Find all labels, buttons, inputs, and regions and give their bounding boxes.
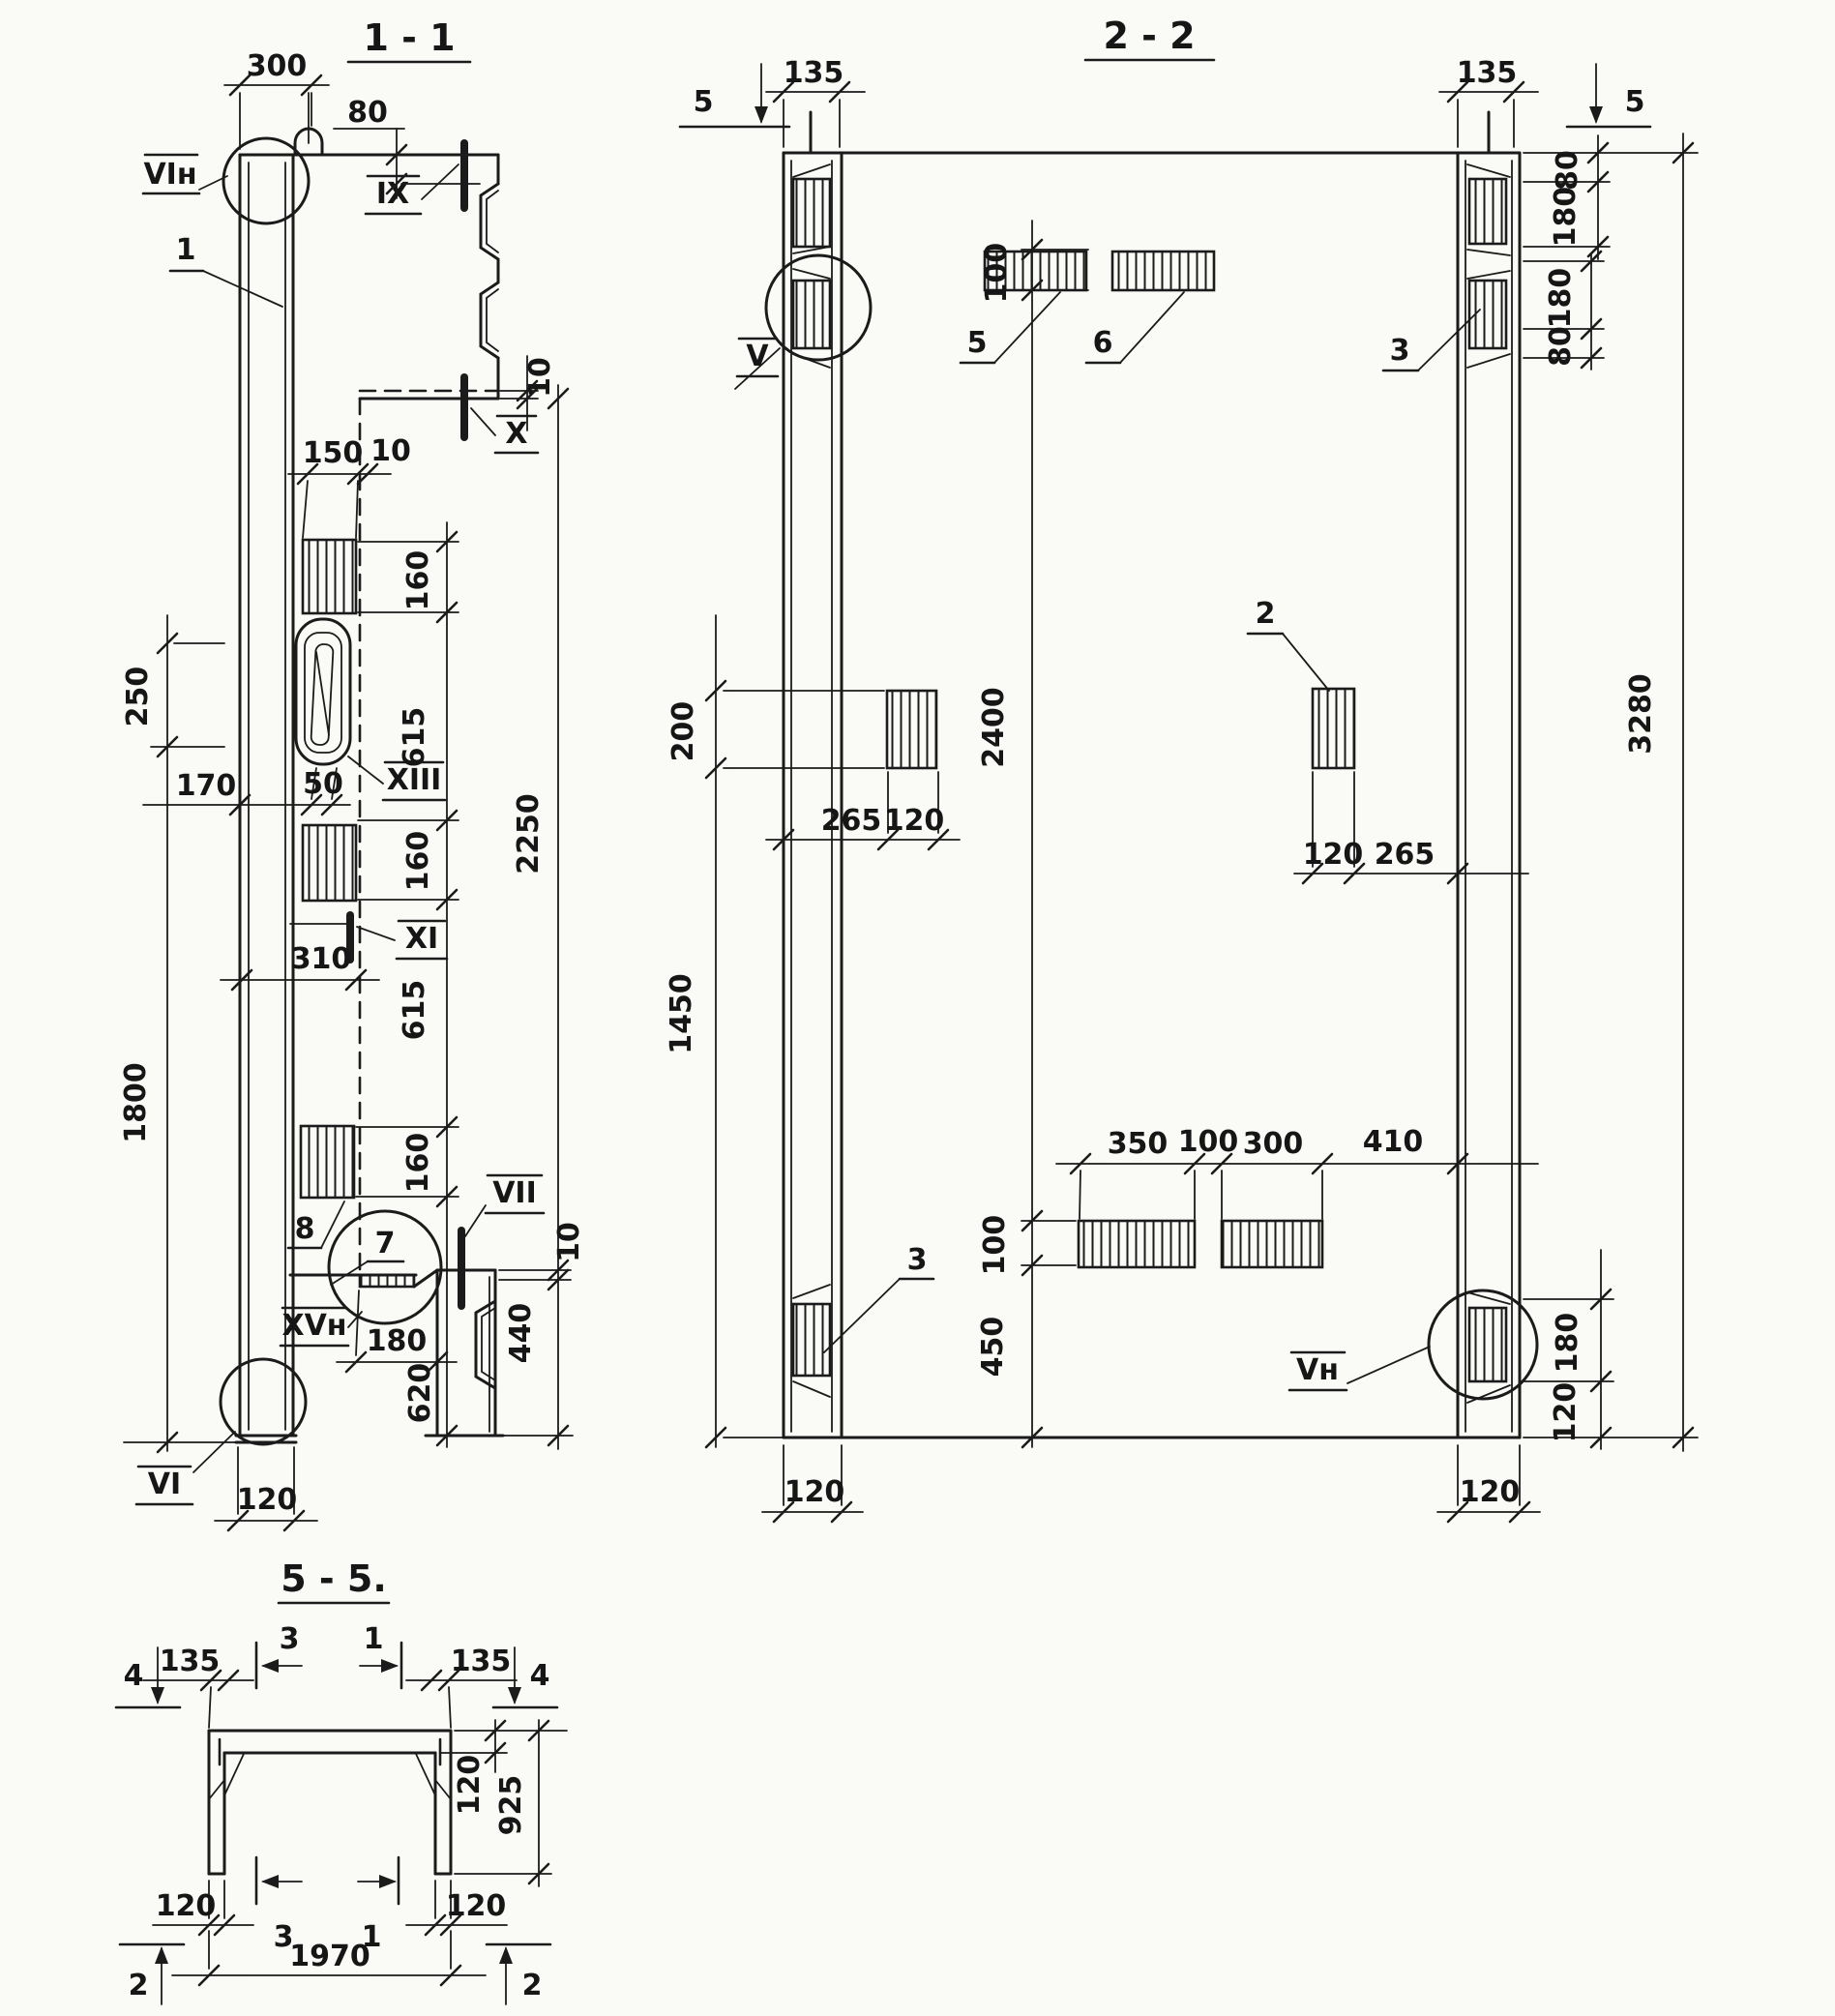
dim-120: 120 bbox=[237, 1483, 298, 1517]
dim-300: 300 bbox=[247, 49, 308, 83]
dim-150: 150 bbox=[303, 436, 364, 470]
dim-80-b: 80 bbox=[1544, 326, 1578, 367]
dim-1970: 1970 bbox=[289, 1940, 370, 1973]
mesh-6 bbox=[1112, 252, 1214, 290]
dim-10-top: 10 bbox=[523, 357, 557, 398]
dim-120-botright: 120 bbox=[446, 1889, 507, 1923]
mark-5-right: 5 bbox=[1625, 85, 1645, 119]
dim-180: 180 bbox=[367, 1324, 428, 1358]
dim-450: 450 bbox=[976, 1317, 1010, 1378]
dim-135-right: 135 bbox=[451, 1645, 512, 1678]
callout-VI: VI bbox=[148, 1468, 181, 1501]
dim-265-right: 265 bbox=[1375, 838, 1435, 872]
dim-1800: 1800 bbox=[119, 1062, 153, 1143]
mark-4-right: 4 bbox=[530, 1659, 550, 1693]
callout-VIn: VIн bbox=[143, 158, 196, 192]
callout-8: 8 bbox=[295, 1212, 315, 1246]
dim-120-botright: 120 bbox=[1460, 1475, 1521, 1509]
dim-160-b: 160 bbox=[401, 831, 435, 892]
dim-300: 300 bbox=[1243, 1127, 1304, 1161]
callout-1: 1 bbox=[176, 233, 196, 267]
callout-3-topright: 3 bbox=[1390, 334, 1410, 368]
callout-6: 6 bbox=[1093, 326, 1113, 360]
section-1-1-title: 1 - 1 bbox=[363, 16, 455, 59]
dim-310: 310 bbox=[291, 942, 352, 976]
rebar-zone-3 bbox=[301, 1126, 354, 1198]
dim-80: 80 bbox=[347, 96, 388, 130]
dim-160-a: 160 bbox=[401, 550, 435, 611]
section-1-1: 1 - 1 bbox=[119, 16, 586, 1530]
section-5-5-title: 5 - 5. bbox=[281, 1557, 387, 1600]
dim-135-right: 135 bbox=[1457, 56, 1518, 90]
section-2-2-title: 2 - 2 bbox=[1103, 15, 1195, 57]
embed-plate-left bbox=[887, 691, 936, 768]
dim-1450: 1450 bbox=[665, 973, 698, 1054]
dim-2250: 2250 bbox=[512, 793, 546, 875]
top-block bbox=[240, 93, 498, 399]
dim-350: 350 bbox=[1108, 1127, 1169, 1161]
left-column-rebar bbox=[793, 164, 830, 1397]
dim-925: 925 bbox=[494, 1775, 528, 1836]
dim-3280: 3280 bbox=[1624, 673, 1658, 755]
dim-120-botleft: 120 bbox=[784, 1475, 845, 1509]
dimensions-5-5: 135 135 120 925 120 120 1970 bbox=[143, 1645, 567, 1985]
callout-Vn: Vн bbox=[1296, 1353, 1339, 1387]
dim-2400: 2400 bbox=[977, 687, 1011, 768]
dim-120-slab: 120 bbox=[453, 1755, 487, 1816]
callout-2: 2 bbox=[1256, 597, 1276, 631]
mesh-bottom-2 bbox=[1222, 1221, 1322, 1267]
dim-120-c: 120 bbox=[1549, 1382, 1583, 1443]
keyway-notch bbox=[481, 282, 498, 358]
drawing-canvas: 1 - 1 bbox=[0, 0, 1835, 2016]
dim-200: 200 bbox=[666, 701, 700, 762]
dim-100-bot: 100 bbox=[978, 1215, 1012, 1276]
dim-100-mid: 100 bbox=[1178, 1125, 1239, 1159]
mesh-bottom-1 bbox=[1079, 1221, 1195, 1267]
dim-135-left: 135 bbox=[784, 56, 844, 90]
channel-profile bbox=[209, 1731, 451, 1874]
dim-620: 620 bbox=[403, 1363, 437, 1424]
callout-XVn: XVн bbox=[281, 1309, 346, 1343]
dim-10-bot: 10 bbox=[552, 1222, 586, 1262]
dim-250: 250 bbox=[121, 667, 155, 727]
dim-120-botleft: 120 bbox=[156, 1889, 217, 1923]
callout-3-bottomleft: 3 bbox=[907, 1243, 928, 1277]
callout-IX: IX bbox=[376, 177, 409, 211]
dim-160-c: 160 bbox=[401, 1133, 435, 1194]
callout-5: 5 bbox=[967, 326, 988, 360]
dim-410: 410 bbox=[1363, 1125, 1424, 1159]
callout-X: X bbox=[505, 417, 527, 451]
mark-4-left: 4 bbox=[124, 1659, 144, 1693]
callout-XI: XI bbox=[405, 922, 438, 956]
dim-615-b: 615 bbox=[398, 980, 431, 1041]
mark-2-left: 2 bbox=[129, 1969, 149, 2002]
dim-10-web: 10 bbox=[370, 434, 411, 468]
dim-265-left: 265 bbox=[821, 804, 882, 838]
section-5-5: 5 - 5. 3 1 3 1 4 4 bbox=[116, 1557, 567, 2004]
cut-marks-3-1: 3 1 3 1 bbox=[256, 1622, 401, 1954]
dim-615-a: 615 bbox=[398, 707, 431, 768]
dim-80-a: 80 bbox=[1551, 150, 1584, 191]
keyway-notch bbox=[481, 184, 498, 259]
dim-100-top: 100 bbox=[980, 243, 1014, 304]
callout-7: 7 bbox=[375, 1227, 396, 1260]
mark-5-left: 5 bbox=[694, 85, 714, 119]
embed-plate-right bbox=[1313, 689, 1354, 768]
dim-50: 50 bbox=[303, 767, 343, 801]
rebar-zone-1 bbox=[303, 540, 356, 613]
blueprint-page: 1 - 1 bbox=[0, 0, 1835, 2016]
detail-circle-VIn bbox=[223, 138, 309, 223]
dim-170: 170 bbox=[176, 769, 237, 803]
dim-440: 440 bbox=[504, 1303, 538, 1364]
dim-180-b: 180 bbox=[1544, 268, 1578, 329]
dim-135-left: 135 bbox=[160, 1645, 221, 1678]
callout-VII: VII bbox=[492, 1176, 537, 1210]
dim-180-c: 180 bbox=[1551, 1313, 1584, 1374]
rebar-zone-2 bbox=[303, 825, 356, 901]
lifting-slot bbox=[296, 619, 350, 764]
mark-2-right: 2 bbox=[522, 1969, 543, 2002]
dim-120-left: 120 bbox=[884, 804, 945, 838]
mark-3-top: 3 bbox=[280, 1622, 300, 1656]
dim-180-a: 180 bbox=[1549, 187, 1583, 248]
section-2-2: 2 - 2 bbox=[665, 15, 1698, 1522]
dim-120-right: 120 bbox=[1303, 838, 1364, 872]
right-column-rebar bbox=[1467, 164, 1510, 1403]
mark-1-top: 1 bbox=[364, 1622, 384, 1656]
